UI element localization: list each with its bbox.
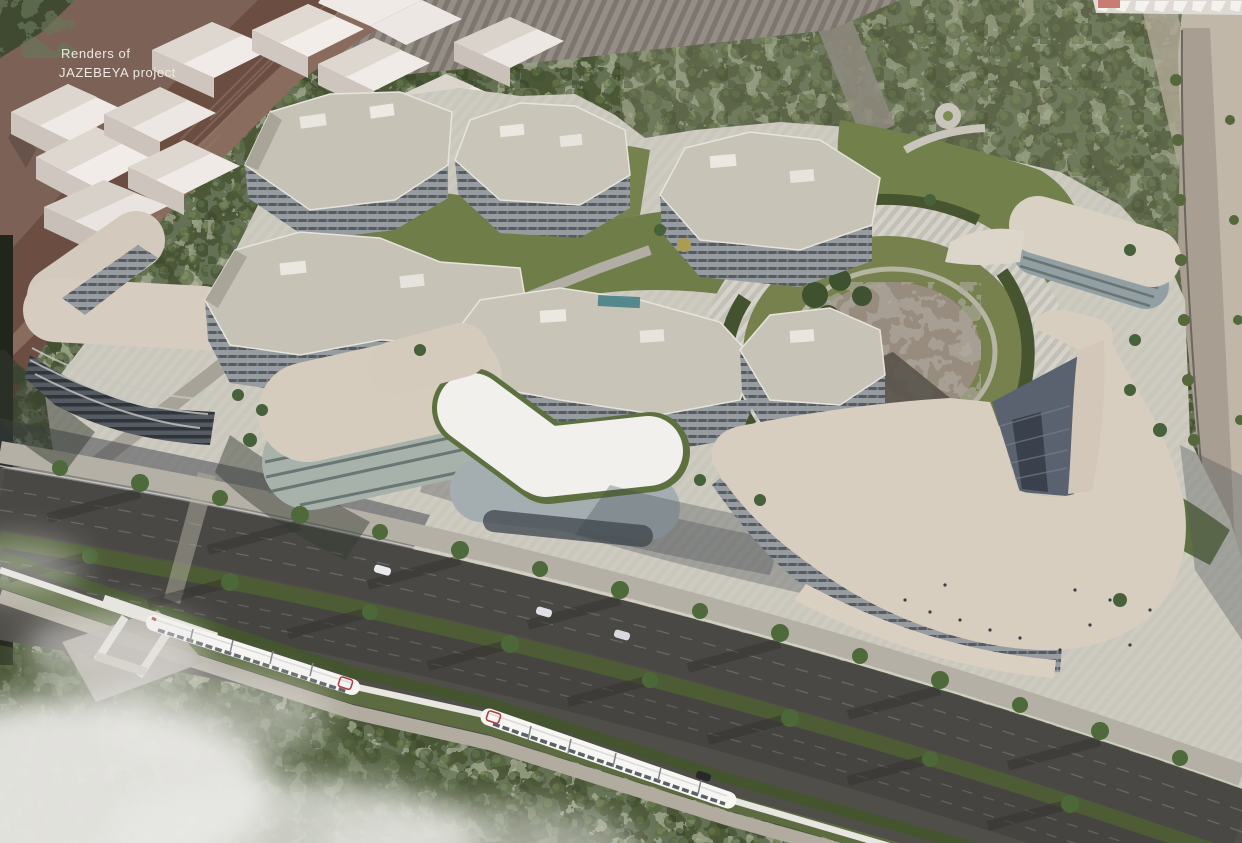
svg-text:JAZEBEYA project: JAZEBEYA project (59, 65, 176, 80)
svg-text:Renders of: Renders of (61, 46, 131, 61)
